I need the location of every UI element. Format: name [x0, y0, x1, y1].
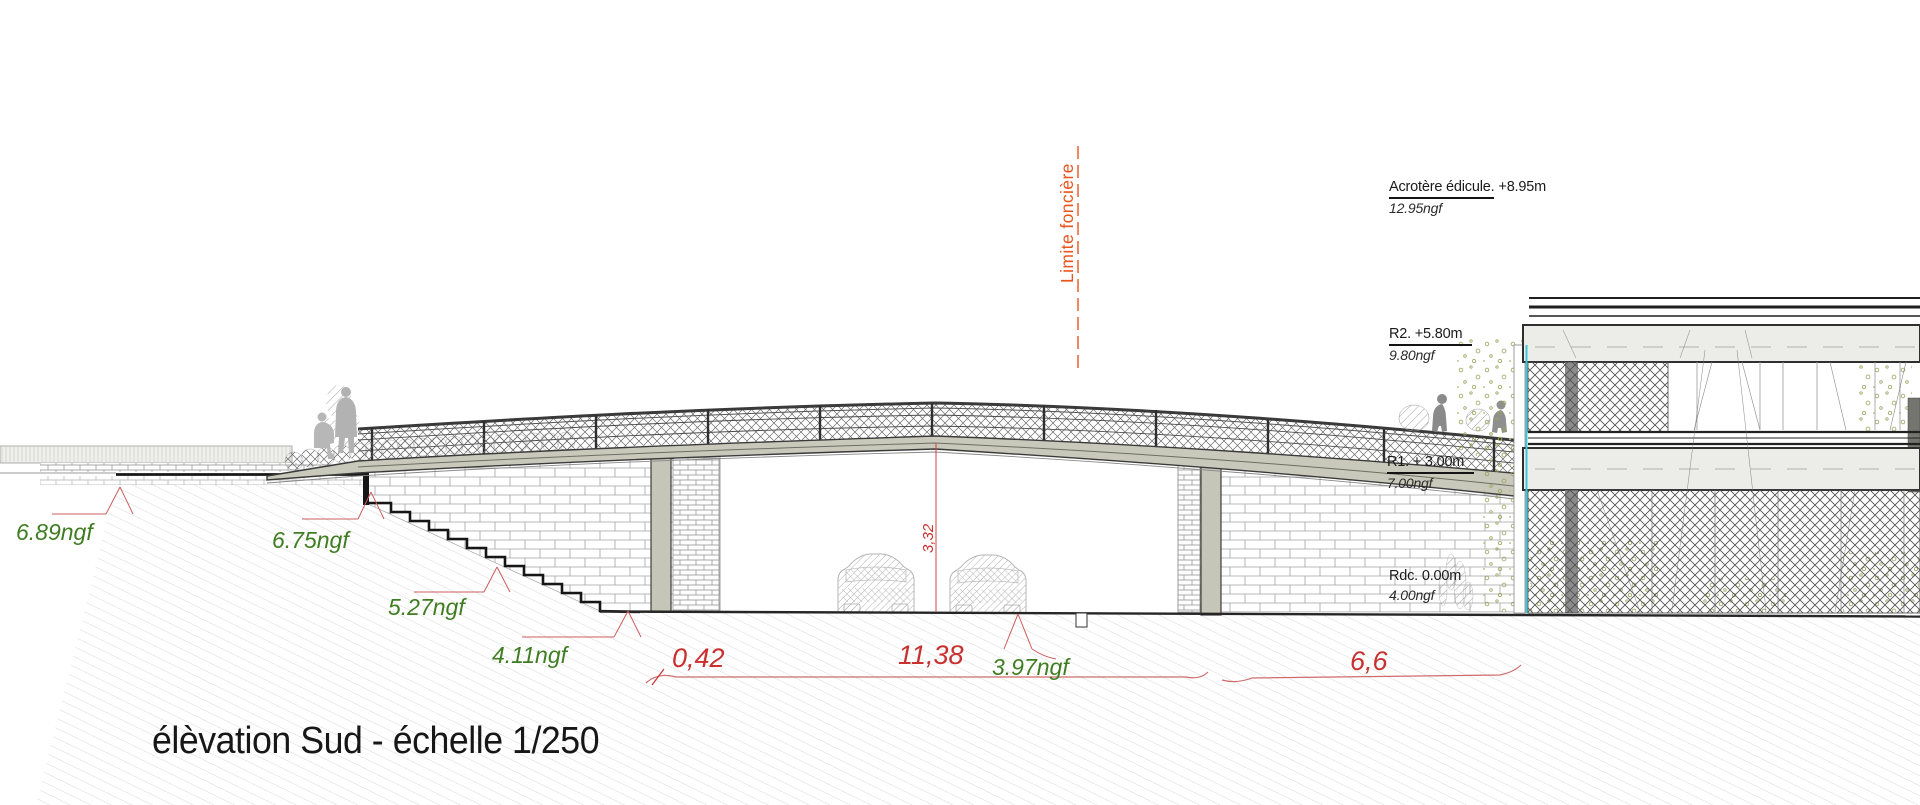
- ground-elevation-label-3: 5.27ngf: [388, 594, 465, 622]
- clearance-label: 3,32: [920, 524, 938, 553]
- property-line-label: Limite foncière: [1057, 163, 1078, 283]
- level-height: [1461, 568, 1465, 584]
- drawing-title: élèvation Sud - échelle 1/250: [152, 719, 599, 765]
- level-ngf: 12.95ngf: [1389, 200, 1546, 217]
- car-icon: [838, 554, 914, 612]
- ground-elevation-label-1: 6.89ngf: [16, 519, 93, 547]
- ground-joint-detail: [1076, 613, 1087, 627]
- level-ngf: 9.80ngf: [1389, 347, 1476, 364]
- garage-opening-edges: [720, 456, 1178, 612]
- level-name: Acrotère édicule.: [1389, 179, 1494, 199]
- level-height: [1472, 326, 1476, 342]
- level-height: [1474, 454, 1478, 470]
- level-height: +8.95m: [1494, 179, 1546, 195]
- roof-fascia: [1523, 325, 1920, 362]
- level-name: R1. + 3.00m: [1387, 454, 1474, 474]
- upper-floor-mesh: [1528, 362, 1668, 432]
- ground-elevation-label-4: 4.11ngf: [492, 642, 567, 670]
- opening-jamb-right: [1178, 457, 1200, 612]
- elevation-drawing: élèvation Sud - échelle 1/250 Acrotère é…: [0, 0, 1920, 805]
- building-facade: [1514, 298, 1920, 613]
- car-icon: [950, 555, 1026, 613]
- drawing-linework: [0, 0, 1920, 805]
- ground-elevation-label-5: 3.97ngf: [992, 654, 1069, 682]
- level-label-r2: R2. +5.80m 9.80ngf: [1389, 326, 1476, 364]
- level-label-r1: R1. + 3.00m 7.00ngf: [1387, 454, 1478, 492]
- dimension-label-1: 0,42: [672, 642, 725, 674]
- pillar-left: [648, 449, 674, 612]
- dimension-label-2: 11,38: [898, 639, 964, 671]
- level-ngf: 7.00ngf: [1387, 475, 1478, 492]
- level-name: R2. +5.80m: [1389, 326, 1472, 346]
- dimension-label-3: 6,6: [1350, 645, 1388, 677]
- level-ngf: 4.00ngf: [1389, 587, 1465, 604]
- ground-elevation-label-2: 6.75ngf: [272, 527, 349, 555]
- level-name: Rdc. 0.00m: [1389, 568, 1461, 586]
- opening-jamb-left: [673, 458, 719, 612]
- ground-floor-mesh: [1528, 490, 1920, 613]
- level-label-acrotere: Acrotère édicule.+8.95m 12.95ngf: [1389, 179, 1546, 217]
- pillar-right: [1198, 456, 1224, 615]
- level-label-rdc: Rdc. 0.00m 4.00ngf: [1389, 568, 1465, 604]
